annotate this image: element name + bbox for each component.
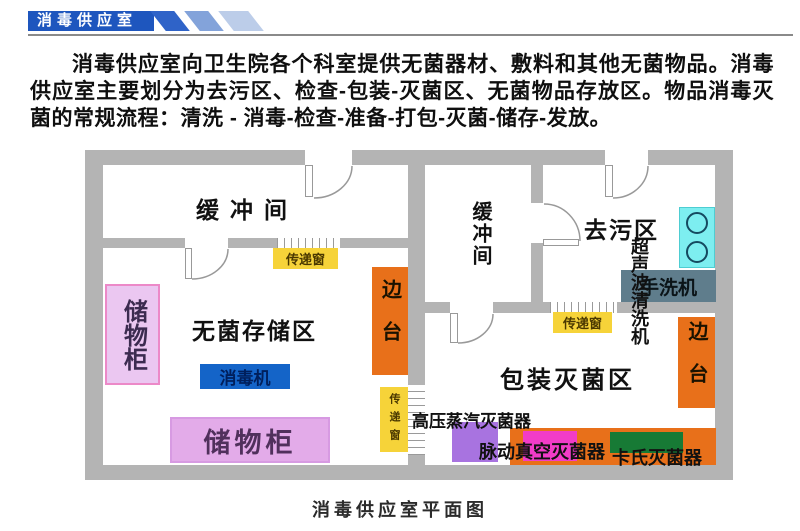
side-table-right: 边台: [678, 317, 715, 408]
room-label-buffer-left: 缓冲间: [196, 191, 298, 225]
banner-stripe-mid: [184, 11, 224, 31]
wall-packing-a: [425, 302, 450, 313]
basin-icon: [686, 241, 708, 263]
pass-window-right: 传递窗: [553, 312, 612, 333]
wall-divider-b: [531, 243, 543, 303]
page-title: 消毒供应室: [28, 11, 154, 31]
plan-caption: 消毒供应室平面图: [0, 496, 800, 522]
storage-cabinet-left: 储物柜: [105, 284, 160, 385]
side-table-left: 边台: [372, 267, 408, 375]
pass-window-mid: 传递窗: [380, 387, 408, 452]
storage-cabinet-bottom-label: 储物柜: [204, 421, 297, 460]
storage-cabinet-left-label: 储物柜: [121, 299, 145, 371]
ultrasonic-cleaner-label: 超声波清洗机: [626, 237, 652, 345]
door-arc-decontamination-top: [605, 165, 649, 199]
side-table-left-label: 边台: [376, 279, 405, 363]
slide-page: 消毒供应室 消毒供应室向卫生院各个科室提供无菌器材、敷料和其他无菌物品。消毒供应…: [0, 0, 800, 531]
side-table-right-label: 边台: [682, 321, 711, 405]
wall-right: [715, 150, 733, 480]
ultrasonic-cleaner: [679, 207, 715, 268]
pulse-vacuum-sterilizer-label: 脉动真空灭菌器: [479, 438, 605, 464]
pass-window-left: 传递窗: [273, 248, 338, 269]
cassette-sterilizer-label: 卡氏灭菌器: [612, 444, 702, 470]
basin-icon: [686, 212, 708, 234]
door-arc-packing: [450, 313, 494, 345]
wall-top-2: [352, 150, 605, 165]
wall-buffer-left-a: [103, 238, 185, 248]
header-divider: [28, 34, 793, 36]
door-arc-sterile-storage: [185, 248, 229, 281]
wall-divider-a: [531, 165, 543, 203]
pass-window-left-label: 传递窗: [286, 249, 325, 268]
room-label-sterile-storage: 无菌存储区: [192, 312, 317, 346]
banner-stripe-light: [218, 11, 264, 31]
door-arc-buffer-left-top: [305, 165, 353, 199]
disinfector-label: 消毒机: [220, 364, 271, 389]
banner-stripe-dark: [150, 11, 190, 31]
intro-paragraph: 消毒供应室向卫生院各个科室提供无菌器材、敷料和其他无菌物品。消毒供应室主要划分为…: [30, 51, 774, 132]
room-label-buffer-right: 缓冲间: [466, 201, 495, 267]
pass-window-mid-label: 传递窗: [386, 393, 402, 447]
wall-top-1: [85, 150, 305, 165]
pass-window-opening-left: [277, 238, 340, 248]
wall-left: [85, 150, 103, 480]
disinfector-machine: 消毒机: [200, 364, 290, 389]
door-arc-buffer-right: [543, 203, 581, 243]
room-label-packing-sterilization: 包装灭菌区: [500, 360, 635, 395]
steam-sterilizer-label: 高压蒸汽灭菌器: [412, 407, 531, 432]
storage-cabinet-bottom: 储物柜: [170, 417, 330, 463]
pass-window-right-label: 传递窗: [563, 313, 602, 332]
